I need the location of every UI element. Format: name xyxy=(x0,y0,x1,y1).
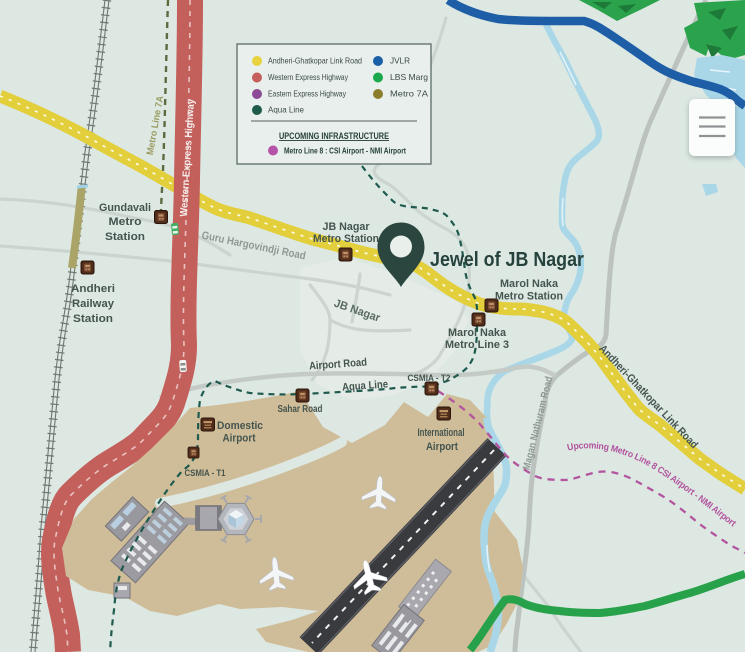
svg-text:Airport: Airport xyxy=(426,441,458,453)
svg-text:Western Express Highway: Western Express Highway xyxy=(268,72,349,82)
svg-text:Sahar Road: Sahar Road xyxy=(278,404,323,415)
svg-text:Metro 7A: Metro 7A xyxy=(390,89,428,99)
svg-text:Metro Station: Metro Station xyxy=(495,291,563,303)
svg-text:Marol Naka: Marol Naka xyxy=(500,278,559,290)
svg-text:Jewel of JB Nagar: Jewel of JB Nagar xyxy=(430,249,584,271)
svg-text:Airport: Airport xyxy=(223,433,256,445)
svg-text:Station: Station xyxy=(73,313,113,325)
svg-text:CSMIA - T2: CSMIA - T2 xyxy=(408,373,451,384)
svg-text:Marol Naka: Marol Naka xyxy=(448,327,507,339)
svg-text:Andheri: Andheri xyxy=(71,283,115,295)
svg-text:Metro: Metro xyxy=(109,216,142,228)
svg-text:JVLR: JVLR xyxy=(390,56,410,66)
svg-text:Gundavali: Gundavali xyxy=(99,202,151,214)
svg-text:UPCOMING INFRASTRUCTURE: UPCOMING INFRASTRUCTURE xyxy=(279,131,389,141)
svg-text:Domestic: Domestic xyxy=(217,420,263,432)
svg-text:Andheri-Ghatkopar Link Road: Andheri-Ghatkopar Link Road xyxy=(268,56,362,66)
svg-text:JB Nagar: JB Nagar xyxy=(323,221,371,233)
svg-text:Station: Station xyxy=(105,231,145,243)
svg-text:LBS Marg: LBS Marg xyxy=(390,72,428,82)
svg-text:Metro Line 8 : CSI Airport - N: Metro Line 8 : CSI Airport - NMI Airport xyxy=(284,146,406,156)
svg-text:International: International xyxy=(418,427,465,439)
svg-text:Metro Station: Metro Station xyxy=(313,233,379,245)
svg-text:Metro Line 3: Metro Line 3 xyxy=(445,339,509,351)
svg-text:Railway: Railway xyxy=(72,298,114,310)
svg-text:Aqua Line: Aqua Line xyxy=(268,105,304,115)
svg-text:CSMIA - T1: CSMIA - T1 xyxy=(185,468,227,479)
svg-text:Eastern Express Highway: Eastern Express Highway xyxy=(268,89,347,99)
